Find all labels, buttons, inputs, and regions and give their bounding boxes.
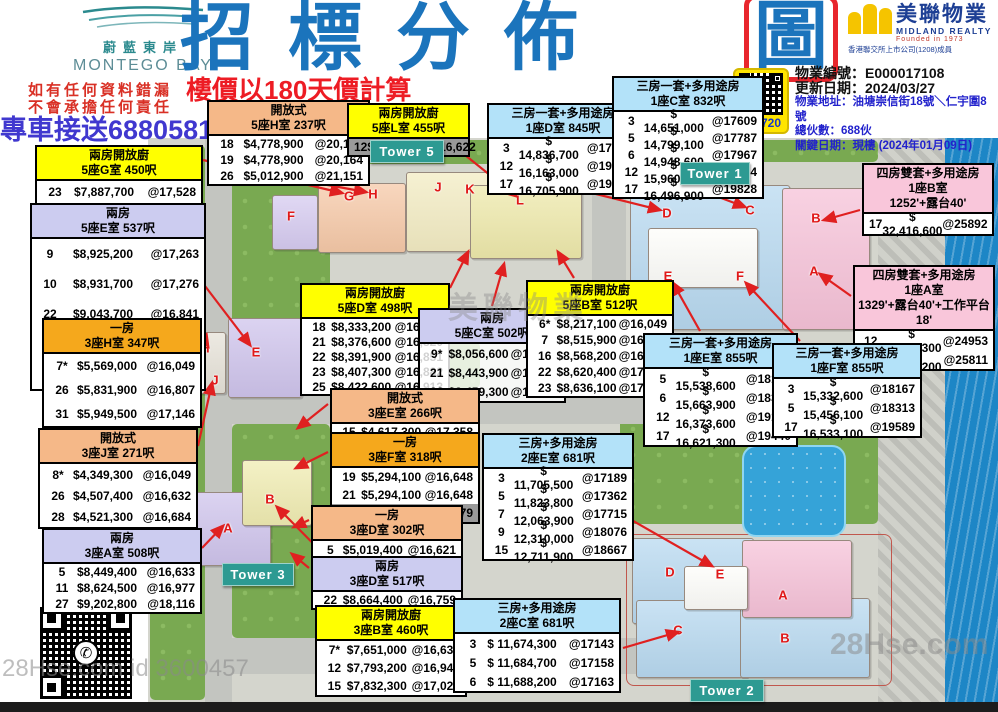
floor: 12	[494, 159, 519, 173]
rate-psf: @21,151	[307, 169, 363, 183]
price: $ 16,621,300	[676, 422, 736, 450]
floor: 21	[337, 488, 361, 502]
floor: 25	[307, 380, 331, 394]
disclaimer-line1: 如有任何資料錯漏	[28, 82, 172, 99]
unit-letter: B	[811, 211, 820, 226]
unit-type: 三房一套+多用途房	[774, 346, 920, 361]
table-header: 兩房開放廚5座G室 450呎	[37, 147, 201, 181]
unit-letter: F	[287, 209, 295, 224]
tender-flyer-page: { "branding": { "montego": {"cn": "蔚藍東岸"…	[0, 0, 998, 712]
floor: 10	[37, 277, 63, 291]
rate-psf: @16,049	[139, 359, 195, 373]
table-header: 一房3座H室 347呎	[44, 320, 200, 354]
price: $ 11,674,300	[486, 637, 558, 651]
unit-area: 1329'+露台40'+工作平台18'	[855, 298, 993, 328]
floor: 16	[533, 349, 556, 363]
table-row: 6*$8,217,100@16,049	[528, 316, 672, 332]
price: $7,651,000	[347, 643, 407, 657]
building-block	[242, 460, 312, 526]
price: $ 11,688,200	[486, 675, 558, 689]
table-row: 3$ 11,674,300@17143	[455, 634, 619, 653]
unit-id: 2座C室 681呎	[455, 616, 619, 631]
price: $ 16,705,900	[519, 170, 579, 198]
price: $4,778,900	[240, 153, 307, 167]
floor: 6	[460, 675, 486, 689]
unit-letter: C	[673, 623, 682, 638]
floor: 17	[779, 420, 803, 434]
unit-area: 1252'+露台40'	[864, 196, 992, 211]
unit-letter: E	[716, 567, 725, 582]
floor: 18	[214, 137, 240, 151]
rate-psf: @16,648	[421, 470, 473, 484]
floor: 12	[354, 140, 367, 154]
floor: 5	[779, 401, 803, 415]
unit-letter: B	[780, 631, 789, 646]
table-row: 17$ 16,533,100@19589	[774, 417, 920, 436]
unit-letter: K	[465, 182, 474, 197]
table-row: 17$ 32,416,600@25892	[864, 214, 992, 234]
floor: 12	[322, 661, 347, 675]
unit-id: 3座B室 460呎	[317, 623, 465, 638]
rate-psf: @17362	[573, 489, 627, 503]
rate-psf: @16,632	[135, 489, 191, 503]
property-info-block: 物業編號：E000017108 更新日期：2024/03/27 物業地址：油塘崇…	[795, 66, 997, 153]
update-date: 更新日期：2024/03/27	[795, 81, 997, 96]
price: $8,443,900	[448, 366, 508, 380]
floor: 26	[45, 489, 71, 503]
table-row: 6$ 11,688,200@17163	[455, 672, 619, 691]
floor: 9	[489, 525, 514, 539]
floor: 11	[49, 581, 75, 595]
table-header: 開放式3座J室 271呎	[40, 430, 196, 464]
unit-type: 兩房	[313, 559, 461, 574]
building-block	[228, 318, 302, 398]
price: $8,333,200	[331, 320, 391, 334]
price-table-2座C室681呎: 三房+多用途房2座C室 681呎3$ 11,674,300@171435$ 11…	[453, 598, 621, 693]
price: $ 16,533,100	[803, 413, 863, 441]
floor: 3	[779, 382, 803, 396]
price-table-1座F室855呎: 三房一套+多用途房1座F室 855呎3$ 15,332,600@181675$ …	[772, 343, 922, 438]
table-row: 5$ 11,684,700@17158	[455, 653, 619, 672]
floor: 3	[494, 141, 519, 155]
price: $8,624,500	[75, 581, 139, 595]
price-table-2座E室681呎: 三房+多用途房2座E室 681呎3$ 11,705,500@171895$ 11…	[482, 433, 634, 561]
unit-id: 5座H室 237呎	[209, 118, 368, 133]
price: $ 32,416,600	[882, 210, 942, 238]
floor: 17	[650, 429, 676, 443]
floor: 5	[489, 489, 514, 503]
property-address: 物業地址：油塘崇信街18號＼仁宇圍8號	[795, 95, 997, 124]
unit-type: 開放式	[209, 103, 368, 118]
price: $5,294,100	[361, 488, 421, 502]
shuttle-phone: 專車接送68805811	[0, 108, 227, 147]
rate-psf: @16,049	[617, 317, 668, 331]
unit-letter: C	[745, 203, 754, 218]
table-header: 兩房開放廚5座B室 512呎	[528, 282, 672, 316]
floor: 31	[49, 407, 75, 421]
table-row: 12$7,793,200@16,942	[317, 659, 465, 677]
floor: 6*	[533, 317, 556, 331]
rate-psf: @16,977	[139, 581, 195, 595]
floor: 26	[49, 383, 75, 397]
floor: 22	[307, 350, 331, 364]
table-row: 21$5,294,100@16,648	[332, 486, 478, 504]
table-header: 開放式5座H室 237呎	[209, 102, 368, 136]
floor: 23	[42, 185, 68, 199]
price-table-3座D室302呎: 一房3座D室 302呎5$5,019,400@16,621	[311, 505, 463, 560]
floor: 5	[619, 131, 644, 145]
unit-type: 兩房開放廚	[349, 106, 468, 121]
unit-letter: B	[265, 492, 274, 507]
rate-psf: @18667	[573, 543, 627, 557]
price-table-3座B室460呎: 兩房開放廚3座B室 460呎7*$7,651,000@16,63312$7,79…	[315, 605, 467, 697]
table-header: 兩房3座D室 517呎	[313, 558, 461, 592]
unit-type: 開放式	[40, 431, 196, 446]
tower-label-tower-5: Tower 5	[370, 140, 444, 163]
midland-en: MIDLAND REALTY	[896, 26, 992, 36]
table-header: 兩房3座A室 508呎	[44, 530, 200, 564]
floor: 7*	[322, 643, 347, 657]
floor: 8*	[45, 468, 71, 482]
unit-id: 3座D室 302呎	[313, 523, 461, 538]
table-row: 31$5,949,500@17,146	[44, 402, 200, 426]
floor: 19	[214, 153, 240, 167]
price: $5,949,500	[75, 407, 139, 421]
unit-type: 一房	[332, 435, 478, 450]
floor: 3	[489, 471, 514, 485]
table-row: 26$5,012,900@21,151	[209, 168, 368, 184]
rate-psf: @16,684	[135, 510, 191, 524]
price: $8,217,100	[556, 317, 616, 331]
price: $7,793,200	[347, 661, 407, 675]
price: $9,202,800	[75, 597, 139, 611]
table-row: 28$4,521,300@16,684	[40, 506, 196, 527]
price: $8,407,300	[331, 365, 391, 379]
unit-type: 兩房開放廚	[528, 283, 672, 298]
table-row: 7*$5,569,000@16,049	[44, 354, 200, 378]
title-text: 招標分佈	[180, 1, 612, 75]
table-header: 兩房開放廚5座L室 455呎	[349, 105, 468, 139]
tower-label-tower-1: Tower 1	[680, 162, 750, 185]
rate-psf: @17189	[573, 471, 627, 485]
table-header: 一房3座D室 302呎	[313, 507, 461, 541]
unit-type: 兩房開放廚	[37, 148, 201, 163]
unit-type: 一房	[44, 321, 200, 336]
floor: 15	[322, 679, 347, 693]
floor: 17	[494, 177, 519, 191]
unit-count: 總伙數：688伙	[795, 124, 997, 139]
price: $4,349,300	[71, 468, 135, 482]
table-row: 19$5,294,100@16,648	[332, 468, 478, 486]
unit-type: 三房一套+多用途房	[614, 79, 762, 94]
floor: 12	[650, 410, 676, 424]
floor: 23	[533, 381, 556, 395]
floor: 5	[49, 565, 75, 579]
table-row: 10$8,931,700@17,276	[32, 269, 204, 299]
key-date: 關鍵日期：現樓 (2024年01月09日)	[795, 139, 997, 154]
unit-letter: D	[662, 206, 671, 221]
price: $5,019,400	[343, 543, 403, 557]
floor: 27	[49, 597, 75, 611]
rate-psf: @17,276	[143, 277, 199, 291]
table-header: 兩房5座E室 537呎	[32, 205, 204, 239]
page-title: 招標分佈 圖	[180, 0, 838, 76]
floor: 5	[650, 372, 676, 386]
price: $8,931,700	[63, 277, 143, 291]
floor: 3	[619, 114, 644, 128]
floor: 17	[619, 182, 644, 196]
unit-letter: E	[252, 345, 261, 360]
rate-psf: @17,528	[140, 185, 196, 199]
building-block	[318, 183, 406, 253]
price: $8,376,600	[331, 335, 391, 349]
table-row: 23$7,887,700@17,528	[37, 181, 201, 202]
floor: 17	[869, 217, 882, 231]
unit-type: 兩房	[44, 531, 200, 546]
unit-id: 5座G室 450呎	[37, 163, 201, 178]
unit-type: 兩房開放廚	[317, 608, 465, 623]
rate-psf: @17967	[704, 148, 757, 162]
unit-letter: G	[344, 189, 354, 204]
unit-type: 四房雙套+多用途房	[864, 166, 992, 181]
rate-psf: @18313	[863, 401, 915, 415]
rate-psf: @25811	[942, 353, 988, 367]
floor: 9*	[425, 347, 448, 361]
tower-label-tower-2: Tower 2	[690, 679, 764, 702]
table-header: 四房雙套+多用途房1座A室1329'+露台40'+工作平台18'	[855, 267, 993, 331]
floor: 6	[619, 148, 644, 162]
table-header: 四房雙套+多用途房1座B室1252'+露台40'	[864, 165, 992, 214]
midland-cn: 美聯物業	[896, 4, 992, 26]
unit-letter: A	[778, 588, 787, 603]
midland-logo: 美聯物業 MIDLAND REALTY Founded in 1973 香港聯交…	[848, 4, 996, 55]
rate-psf: @17,263	[143, 247, 199, 261]
unit-letter: A	[223, 521, 232, 536]
table-row: 5$8,449,400@16,633	[44, 564, 200, 580]
table-row: 27$9,202,800@18,116	[44, 596, 200, 612]
rate-psf: @16,049	[135, 468, 191, 482]
price-table-5座H室237呎: 開放式5座H室 237呎18$4,778,900@20,16419$4,778,…	[207, 100, 370, 186]
unit-type: 三房+多用途房	[484, 436, 632, 451]
rate-psf: @16,633	[139, 565, 195, 579]
price: $4,507,400	[71, 489, 135, 503]
rate-psf: @17787	[704, 131, 757, 145]
floor: 18	[307, 320, 331, 334]
rate-psf: @16,807	[139, 383, 195, 397]
rate-psf: @19589	[863, 420, 915, 434]
floor: 15	[489, 543, 514, 557]
rate-psf: @18167	[863, 382, 915, 396]
floor: 5	[318, 543, 343, 557]
unit-id: 3座F室 318呎	[332, 450, 478, 465]
price-table-3座D室517呎: 兩房3座D室 517呎22$8,664,400@16,759	[311, 556, 463, 610]
floor: 7*	[49, 359, 75, 373]
unit-id: 1座B室	[864, 181, 992, 196]
unit-id: 3座H室 347呎	[44, 336, 200, 351]
floor: 6	[650, 391, 676, 405]
price: $ 12,711,900	[514, 536, 573, 564]
floor: 22	[533, 365, 556, 379]
unit-type: 一房	[313, 508, 461, 523]
unit-id: 5座B室 512呎	[528, 298, 672, 313]
rate-psf: @16,621	[403, 543, 456, 557]
rate-psf: @18076	[574, 525, 627, 539]
rate-psf: @17715	[574, 507, 627, 521]
floor: 9	[37, 247, 63, 261]
midland-m-icon	[848, 4, 892, 34]
table-header: 開放式3座E室 266呎	[332, 390, 478, 424]
property-id: 物業編號：E000017108	[795, 66, 997, 81]
table-row: 15$ 12,711,900@18667	[484, 541, 632, 559]
floor: 28	[45, 510, 71, 524]
price: $8,620,400	[556, 365, 616, 379]
price: $5,294,100	[361, 470, 421, 484]
table-row: 7*$7,651,000@16,633	[317, 641, 465, 659]
midland-founded: Founded in 1973	[896, 36, 992, 43]
table-header: 三房+多用途房2座C室 681呎	[455, 600, 619, 634]
price: $4,778,900	[240, 137, 307, 151]
floor: 3	[460, 637, 486, 651]
qr-corner	[772, 73, 783, 84]
price: $5,012,900	[240, 169, 307, 183]
unit-type: 兩房	[32, 206, 204, 221]
midland-member-line: 香港聯交所上市公司(1208)成員	[848, 44, 996, 55]
table-row: 9$8,925,200@17,263	[32, 239, 204, 269]
price: $8,925,200	[63, 247, 143, 261]
price: $5,569,000	[75, 359, 139, 373]
price: $8,056,600	[448, 347, 508, 361]
price: $8,568,200	[556, 349, 616, 363]
unit-letter: A	[809, 264, 818, 279]
price: $8,391,900	[331, 350, 391, 364]
unit-type: 兩房開放廚	[302, 286, 448, 301]
whatsapp-qr-code: ✆	[40, 607, 132, 699]
building-block	[742, 540, 852, 618]
rate-psf: @17158	[558, 656, 614, 670]
table-row: 26$4,507,400@16,632	[40, 485, 196, 506]
price: $5,831,900	[75, 383, 139, 397]
price: $8,449,400	[75, 565, 139, 579]
price: $4,521,300	[71, 510, 135, 524]
table-row: 8*$4,349,300@16,049	[40, 464, 196, 485]
price: $8,515,900	[556, 333, 616, 347]
tower-label-tower-3: Tower 3	[222, 563, 294, 586]
unit-letter: F	[736, 269, 744, 284]
unit-letter: D	[665, 565, 674, 580]
floor: 7	[489, 507, 514, 521]
price-table-1座B室: 四房雙套+多用途房1座B室1252'+露台40'17$ 32,416,600@2…	[862, 163, 994, 236]
floor: 23	[307, 365, 331, 379]
unit-letter: J	[434, 180, 441, 195]
table-header: 一房3座F室 318呎	[332, 434, 478, 468]
unit-type: 開放式	[332, 391, 478, 406]
floor: 26	[214, 169, 240, 183]
unit-id: 1座A室	[855, 283, 993, 298]
table-row: 19$4,778,900@20,164	[209, 152, 368, 168]
swimming-pool	[742, 445, 846, 537]
qr-corner	[40, 675, 64, 699]
rate-psf: @25892	[942, 217, 987, 231]
floor: 7	[533, 333, 556, 347]
unit-id: 5座E室 537呎	[32, 221, 204, 236]
table-row: 11$8,624,500@16,977	[44, 580, 200, 596]
unit-id: 5座L室 455呎	[349, 121, 468, 136]
table-header: 兩房開放廚3座B室 460呎	[317, 607, 465, 641]
floor: 5	[460, 656, 486, 670]
whatsapp-icon: ✆	[73, 640, 99, 666]
price: $ 11,684,700	[486, 656, 558, 670]
unit-id: 3座E室 266呎	[332, 406, 478, 421]
rate-psf: @17163	[558, 675, 614, 689]
bottom-bar	[0, 702, 998, 712]
building-block	[636, 600, 748, 678]
floor: 19	[337, 470, 361, 484]
unit-letter: H	[368, 187, 377, 202]
rate-psf: @17143	[558, 637, 614, 651]
table-row: 18$4,778,900@20,164	[209, 136, 368, 152]
floor: 21	[425, 366, 448, 380]
unit-id: 3座J室 271呎	[40, 446, 196, 461]
unit-id: 3座D室 517呎	[313, 574, 461, 589]
rate-psf: @17,146	[139, 407, 195, 421]
price: $7,832,300	[347, 679, 407, 693]
unit-type: 三房+多用途房	[455, 601, 619, 616]
price-table-3座H室347呎: 一房3座H室 347呎7*$5,569,000@16,04926$5,831,9…	[42, 318, 202, 428]
price-table-3座A室508呎: 兩房3座A室 508呎5$8,449,400@16,63311$8,624,50…	[42, 528, 202, 614]
price: $8,636,100	[556, 381, 616, 395]
unit-letter: J	[211, 373, 218, 388]
rate-psf: @18,116	[139, 597, 195, 611]
rate-psf: @17609	[704, 114, 757, 128]
rate-psf: @16,648	[421, 488, 473, 502]
floor: 12	[619, 165, 644, 179]
unit-type: 四房雙套+多用途房	[855, 268, 993, 283]
rate-psf: @24953	[942, 334, 988, 348]
price-table-3座J室271呎: 開放式3座J室 271呎8*$4,349,300@16,04926$4,507,…	[38, 428, 198, 529]
table-row: 15$7,832,300@17,027	[317, 677, 465, 695]
price: $7,887,700	[68, 185, 140, 199]
floor: 21	[307, 335, 331, 349]
unit-id: 3座A室 508呎	[44, 546, 200, 561]
table-row: 26$5,831,900@16,807	[44, 378, 200, 402]
